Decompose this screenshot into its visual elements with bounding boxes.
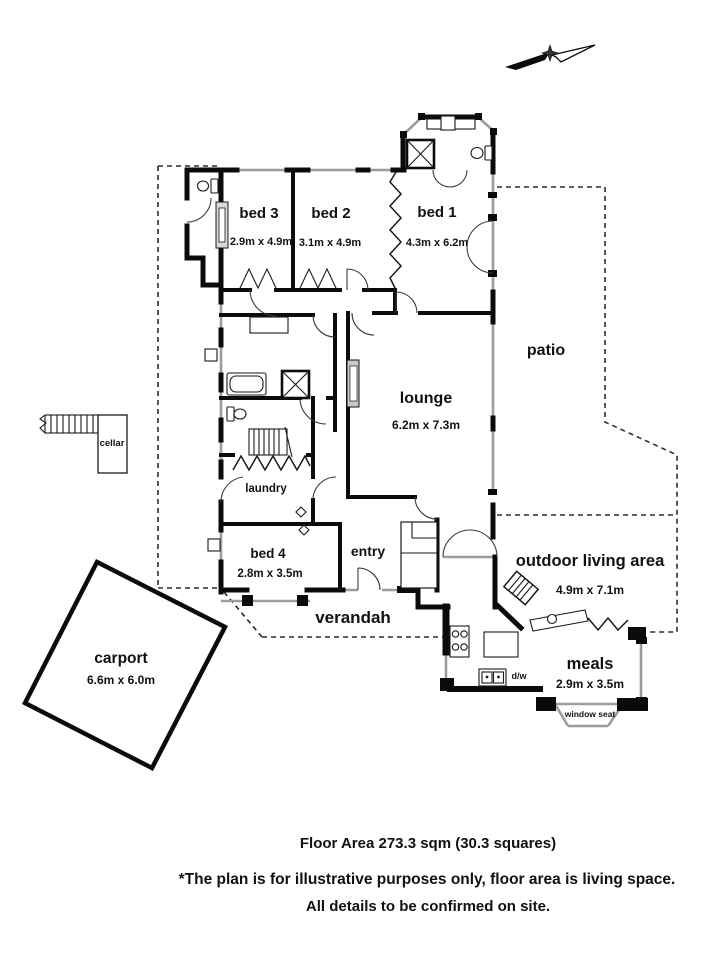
disclaimer-line1: *The plan is for illustrative purposes o… <box>179 871 676 888</box>
cooktop-icon <box>450 626 469 657</box>
carport-dims: 6.6m x 6.0m <box>87 673 155 687</box>
servery-bench <box>530 610 588 631</box>
bbq-icon <box>504 571 538 604</box>
laundry-zigzag <box>233 456 310 470</box>
lounge-label: lounge <box>400 390 453 407</box>
bathroom-fixtures <box>227 317 309 421</box>
ensuite-toilet-icon <box>471 148 483 159</box>
outdoor-living-label: outdoor living area <box>516 552 665 570</box>
entry-label: entry <box>351 543 385 559</box>
verandah-post <box>297 595 308 606</box>
lounge-dims: 6.2m x 7.3m <box>392 418 460 432</box>
laundry-fitting-icon <box>296 507 306 517</box>
laundry-fitting-icon <box>299 525 309 535</box>
stairs-icon <box>249 427 292 457</box>
bed1-label: bed 1 <box>417 204 456 221</box>
bed4-label: bed 4 <box>250 546 286 561</box>
cellar-label: cellar <box>100 438 125 449</box>
island-bench <box>484 632 518 657</box>
footer: Floor Area 273.3 sqm (30.3 squares) *The… <box>179 835 676 915</box>
bed3-dims: 2.9m x 4.9m <box>230 236 293 248</box>
dishwasher-label: d/w <box>512 671 528 681</box>
floor-area-text: Floor Area 273.3 sqm (30.3 squares) <box>300 835 556 852</box>
wc-toilet-icon <box>198 179 219 193</box>
laundry-label: laundry <box>245 483 287 495</box>
bed1-dims: 4.3m x 6.2m <box>406 237 469 249</box>
bed1-robe-zigzag <box>390 172 401 290</box>
entry-closet <box>401 522 437 588</box>
floorplan-page: bed 3 2.9m x 4.9m bed 2 3.1m x 4.9m bed … <box>0 0 720 960</box>
outdoor-living-dims: 4.9m x 7.1m <box>556 583 624 597</box>
bed2-dims: 3.1m x 4.9m <box>299 237 362 249</box>
bed3-label: bed 3 <box>239 205 278 222</box>
meals-label: meals <box>567 655 614 673</box>
toilet-icon <box>234 409 246 419</box>
floorplan-drawing: bed 3 2.9m x 4.9m bed 2 3.1m x 4.9m bed … <box>0 0 720 960</box>
kitchen-fixtures <box>450 626 518 686</box>
meals-dims: 2.9m x 3.5m <box>556 677 624 691</box>
bed4-dims: 2.8m x 3.5m <box>237 568 302 580</box>
verandah-post <box>242 595 253 606</box>
carport-label: carport <box>94 650 147 667</box>
window-seat-label: window seat <box>564 709 616 719</box>
bed3-robe-bifold <box>240 269 276 288</box>
patio-label: patio <box>527 342 565 359</box>
compass-north-arrow <box>505 45 595 70</box>
ensuite-fixtures <box>407 116 492 168</box>
bed2-robe-bifold <box>300 269 336 288</box>
verandah-label: verandah <box>315 608 391 627</box>
meals-window-zigzag <box>588 618 628 630</box>
disclaimer-line2: All details to be confirmed on site. <box>306 898 550 915</box>
bed2-label: bed 2 <box>311 205 350 222</box>
